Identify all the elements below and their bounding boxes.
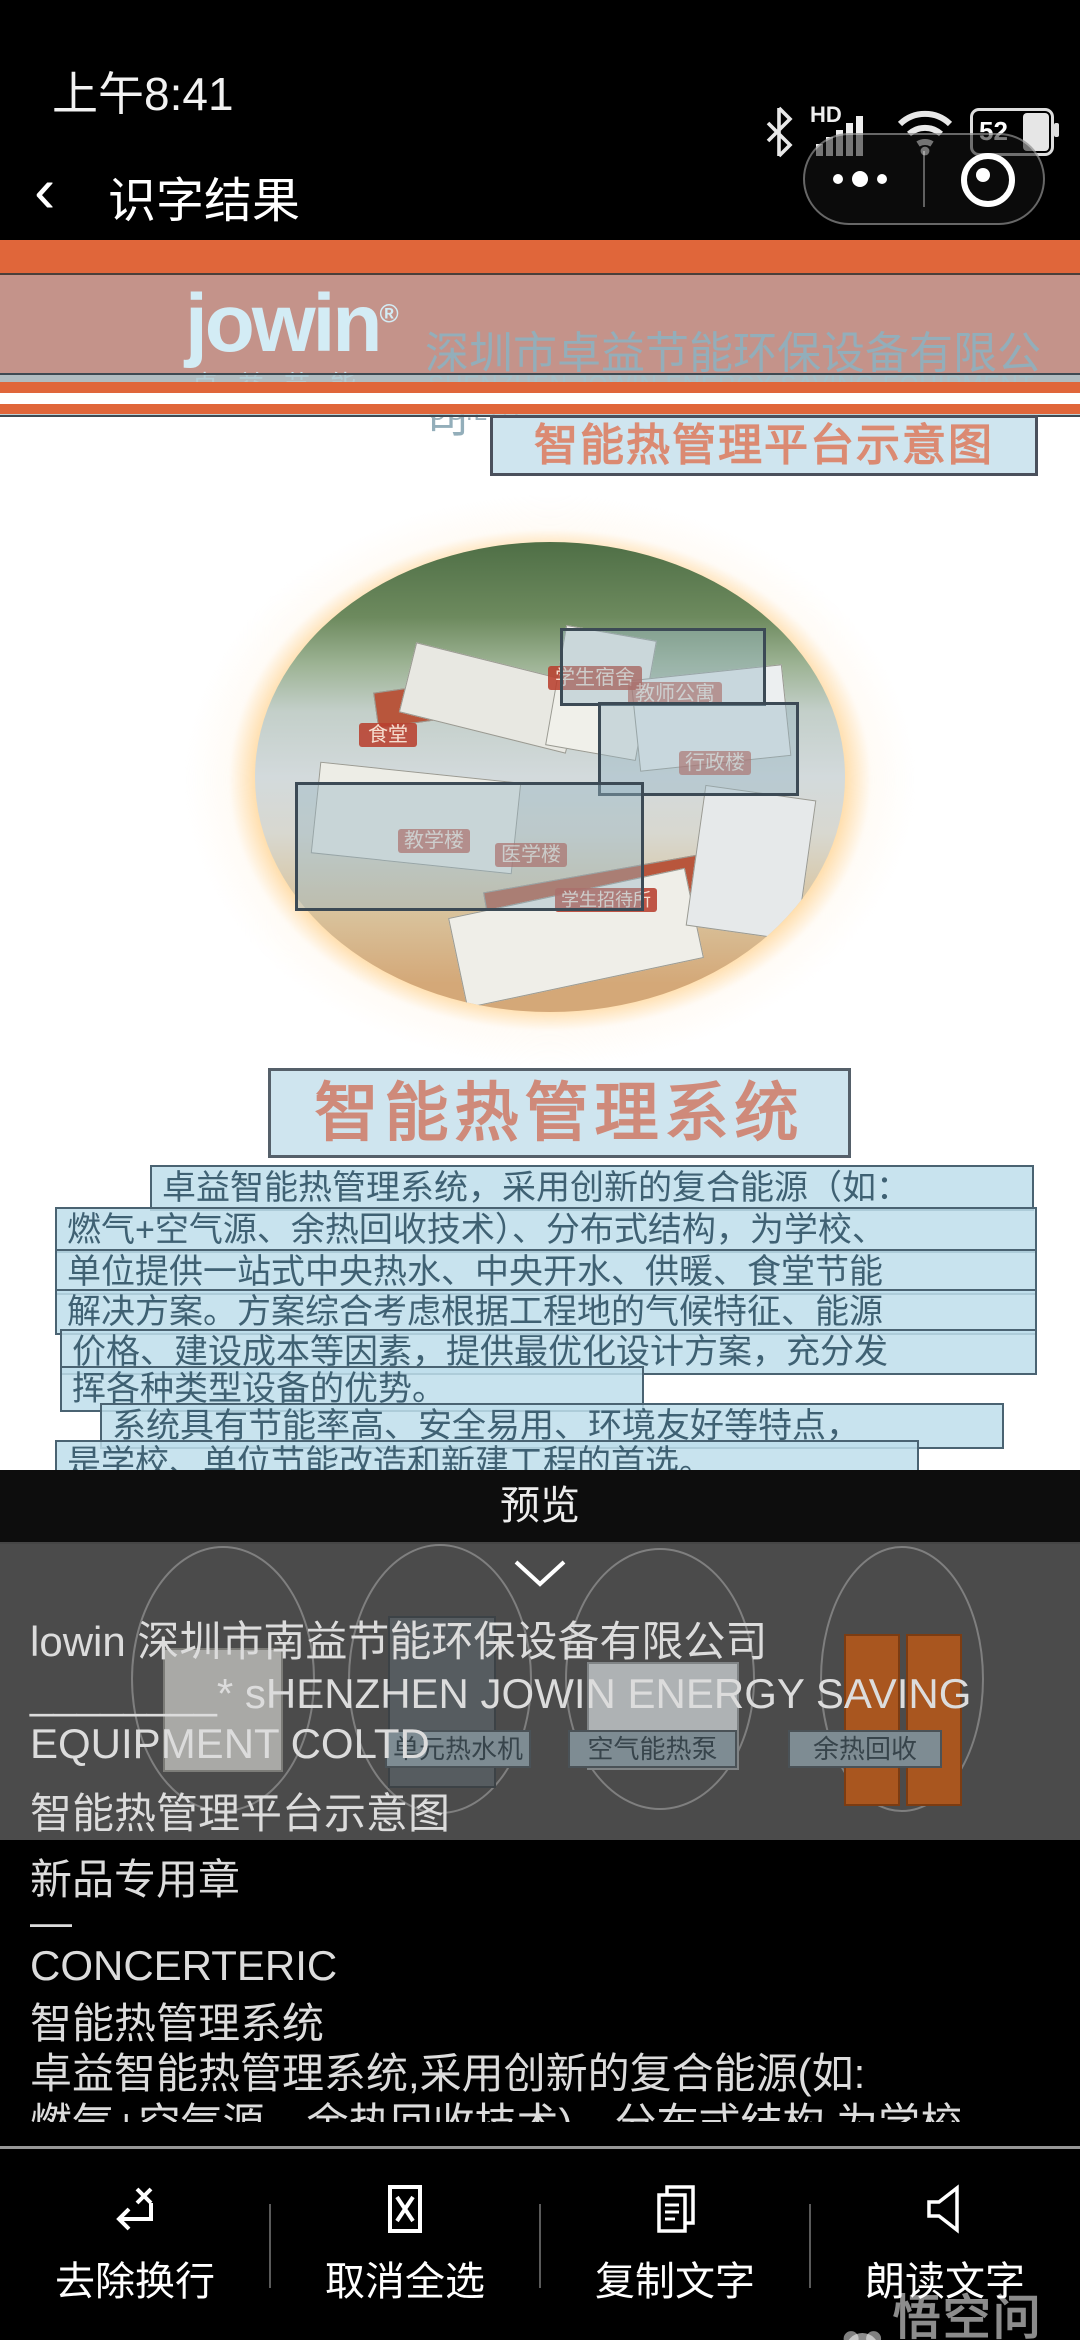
jowin-logo: jowin® — [185, 277, 399, 371]
logo-band: jowin® 卓益节能 深圳市卓益节能环保设备有限公司 SHENZHEN JOW… — [0, 273, 1080, 387]
close-circle-icon[interactable] — [961, 153, 1015, 207]
collapse-chevron-icon[interactable] — [510, 1556, 570, 1592]
capsule-divider — [923, 151, 925, 207]
preview-dim-area: 单元热水机 空气能热泵 余热回收 lowin 深圳市南益节能环保设备有限公司 _… — [0, 1544, 1080, 1840]
remove-linebreak-icon — [0, 2181, 270, 2241]
toolbar-label: 去除换行 — [0, 2249, 270, 2307]
product-label: 余热回收 — [788, 1730, 942, 1768]
remove-linebreak-button[interactable]: 去除换行 — [0, 2149, 270, 2340]
toolbar-label: 取消全选 — [270, 2249, 540, 2307]
preview-panel-header[interactable]: 预览 — [0, 1470, 1080, 1544]
scanned-document[interactable]: jowin® 卓益节能 深圳市卓益节能环保设备有限公司 SHENZHEN JOW… — [0, 240, 1080, 1470]
recognized-text-line[interactable]: lowin 深圳市南益节能环保设备有限公司 — [30, 1608, 767, 1669]
orange-band — [0, 382, 1080, 393]
more-options-icon[interactable] — [833, 171, 887, 187]
bluetooth-icon — [764, 106, 794, 158]
page-title: 识字结果 — [108, 161, 300, 231]
clipped-line-wrap: 燃气+空气源、余热回收技术)、分布式结构,为学校 — [0, 2090, 1080, 2122]
recognized-text-line[interactable]: 燃气+空气源、余热回收技术)、分布式结构,为学校 — [30, 2090, 962, 2122]
deselect-all-icon — [270, 2181, 540, 2241]
toolbar-label: 复制文字 — [540, 2249, 810, 2307]
copy-text-button[interactable]: 复制文字 — [540, 2149, 810, 2340]
clock: 上午8:41 — [52, 58, 234, 124]
deselect-all-button[interactable]: 取消全选 — [270, 2149, 540, 2340]
ocr-selected-line[interactable]: 是学校、单位节能改造和新建工程的首选。 — [55, 1440, 919, 1470]
image-selection-box[interactable] — [560, 628, 766, 706]
preview-text-area: 新品专用章 — CONCERTERIC 智能热管理系统 卓益智能热管理系统,采用… — [0, 1840, 1080, 2146]
ocr-selected-line[interactable]: 燃气+空气源、余热回收技术）、分布式结构，为学校、 — [55, 1207, 1037, 1253]
copy-text-icon — [540, 2181, 810, 2241]
product-label: 空气能热泵 — [568, 1730, 737, 1768]
wukong-logo-icon — [838, 2320, 887, 2340]
miniprogram-capsule — [803, 133, 1045, 225]
watermark: 悟空问答 — [838, 2278, 1080, 2340]
recognized-text-line[interactable]: ________* sHENZHEN JOWIN ENERGY SAVING — [30, 1670, 971, 1718]
orange-band-top — [0, 240, 1080, 273]
product-machine — [844, 1634, 900, 1806]
white-band — [0, 393, 1080, 404]
campus-aerial-image: 食堂 学生宿舍 教师公寓 行政楼 教学楼 医学楼 学生招待所 — [150, 480, 950, 1080]
back-icon[interactable]: ‹ — [34, 153, 55, 227]
watermark-text: 悟空问答 — [893, 2278, 1080, 2340]
recognized-text-line[interactable]: EQUIPMENT COLTD — [30, 1720, 430, 1768]
section-title: 智能热管理系统 — [268, 1068, 851, 1158]
recognized-text-line[interactable]: — — [30, 1898, 72, 1946]
read-aloud-icon — [810, 2181, 1080, 2241]
orange-band — [0, 404, 1080, 414]
platform-banner-title: 智能热管理平台示意图 — [490, 415, 1038, 476]
map-label-canteen: 食堂 — [359, 723, 417, 747]
nav-bar: ‹ 识字结果 — [0, 165, 1080, 240]
phone-screen: 上午8:41 HD 52 — [0, 0, 1080, 2340]
image-selection-box[interactable] — [295, 782, 644, 911]
recognized-text-line[interactable]: 智能热管理平台示意图 — [30, 1780, 450, 1840]
ocr-selected-line[interactable]: 卓益智能热管理系统，采用创新的复合能源（如： — [150, 1165, 1034, 1211]
product-machine — [906, 1634, 962, 1806]
recognized-text-line[interactable]: CONCERTERIC — [30, 1942, 337, 1990]
